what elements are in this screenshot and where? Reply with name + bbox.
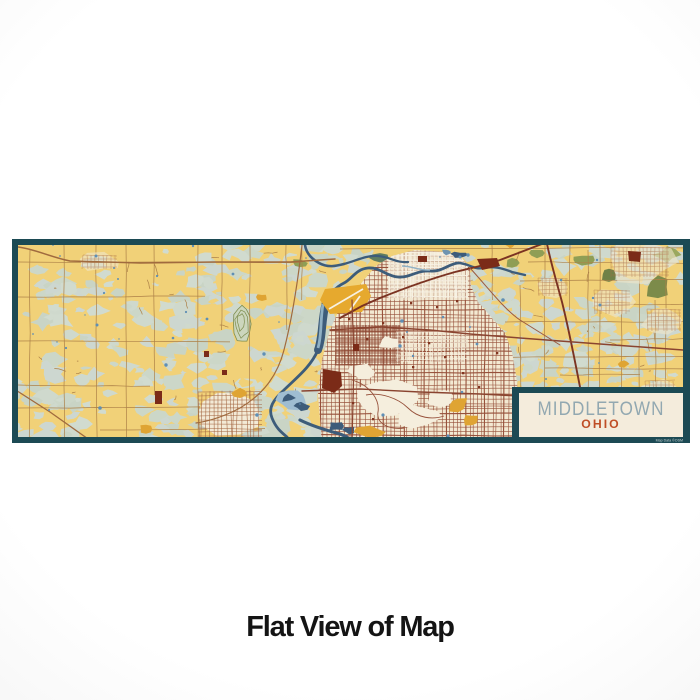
svg-text:MIDDLETOWN: MIDDLETOWN [537,398,664,419]
svg-text:OHIO: OHIO [581,417,620,431]
svg-text:Map Data ©OSM: Map Data ©OSM [656,439,683,443]
